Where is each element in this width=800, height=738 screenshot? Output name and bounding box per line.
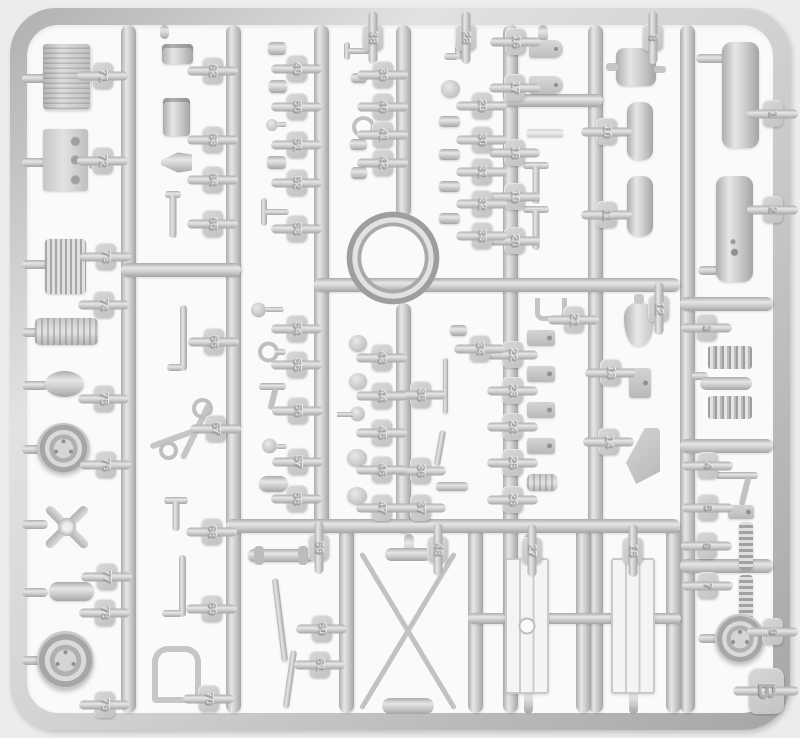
part-51 xyxy=(266,118,287,131)
part-tag-7: 7 xyxy=(697,572,718,599)
part-number: 60 xyxy=(316,622,328,635)
runner-vertical xyxy=(339,527,354,713)
part-number: 16 xyxy=(510,35,522,48)
part-tag-63: 63 xyxy=(202,126,223,153)
part-43 xyxy=(349,335,367,352)
part-69 xyxy=(162,555,186,617)
part-tag-48: 48 xyxy=(427,536,448,563)
part-number: 12 xyxy=(653,302,665,315)
part-number: 69 xyxy=(206,602,218,615)
part-tag-5: 5 xyxy=(697,494,718,521)
part-tag-40: 40 xyxy=(372,93,393,120)
sprue-letter: B xyxy=(752,682,780,700)
part-number: 18 xyxy=(509,146,521,159)
part-42 xyxy=(351,167,367,179)
part-number: 15 xyxy=(627,544,639,557)
part-77 xyxy=(39,498,95,556)
part-number: 54 xyxy=(291,322,303,335)
part-tag-34: 34 xyxy=(469,335,490,362)
part-25 xyxy=(527,438,555,454)
part-number: 70 xyxy=(203,692,215,705)
part-detail xyxy=(385,548,431,561)
part-detail xyxy=(708,346,752,369)
part-number: 1 xyxy=(767,110,779,117)
part-75 xyxy=(45,371,84,397)
part-tag-79: 79 xyxy=(94,691,115,718)
part-number: 10 xyxy=(601,125,613,138)
part-tag-27: 27 xyxy=(521,537,542,564)
part-number: 71 xyxy=(97,69,109,82)
part-number: 20 xyxy=(509,234,521,247)
part-tag-67: 67 xyxy=(205,415,226,442)
part-number: 24 xyxy=(507,420,519,433)
part-tag-68: 68 xyxy=(201,518,222,545)
part-23 xyxy=(527,366,555,382)
part-number: 35 xyxy=(415,388,427,401)
part-26 xyxy=(527,474,557,491)
part-tag-65: 65 xyxy=(202,210,223,237)
part-tag-36: 36 xyxy=(410,457,431,484)
part-tag-35: 35 xyxy=(410,381,431,408)
part-tag-3: 3 xyxy=(696,314,717,341)
part-30 xyxy=(439,116,460,127)
runner-vertical xyxy=(396,303,411,534)
part-number: 28 xyxy=(460,31,472,44)
part-tag-4: 4 xyxy=(697,452,718,479)
part-1 xyxy=(722,42,759,148)
part-number: 51 xyxy=(291,138,303,151)
part-55 xyxy=(258,343,286,361)
part-49 xyxy=(268,42,286,55)
part-41 xyxy=(350,139,367,150)
part-number: 46 xyxy=(376,463,388,476)
part-detail xyxy=(159,441,178,460)
part-tag-8: 8 xyxy=(642,24,663,51)
part-7 xyxy=(739,575,753,619)
part-9 xyxy=(715,614,765,664)
part-tag-17: 17 xyxy=(504,74,525,101)
part-tag-62: 62 xyxy=(202,57,223,84)
part-tag-78: 78 xyxy=(94,599,115,626)
part-number: 17 xyxy=(509,81,521,94)
part-45 xyxy=(337,406,369,422)
sprue-gate-stub xyxy=(160,25,169,39)
part-number: 7 xyxy=(702,582,714,589)
part-number: 3 xyxy=(701,324,713,331)
part-tag-59: 59 xyxy=(308,534,329,561)
part-tag-13: 13 xyxy=(600,359,621,386)
part-tag-11: 11 xyxy=(596,201,617,228)
part-number: 33 xyxy=(476,229,488,242)
part-62 xyxy=(162,44,193,64)
part-58 xyxy=(259,476,288,492)
part-number: 57 xyxy=(292,455,304,468)
part-number: 48 xyxy=(432,543,444,556)
part-79 xyxy=(37,631,94,690)
part-tag-54: 54 xyxy=(286,315,307,342)
part-detail xyxy=(700,377,752,390)
part-tag-29: 29 xyxy=(471,92,492,119)
part-65 xyxy=(165,191,181,238)
part-tag-21: 21 xyxy=(563,306,584,333)
part-tag-9: 9 xyxy=(762,618,783,645)
part-detail xyxy=(382,698,434,714)
part-number: 78 xyxy=(99,606,111,619)
runner-horizontal xyxy=(680,297,773,311)
part-54 xyxy=(251,302,284,317)
part-33 xyxy=(439,213,460,224)
part-number: 38 xyxy=(367,31,379,44)
part-27 xyxy=(505,558,549,694)
part-53 xyxy=(261,198,289,226)
part-number: 58 xyxy=(291,492,303,505)
part-78 xyxy=(49,582,94,601)
part-number: 67 xyxy=(210,422,222,435)
part-31 xyxy=(439,149,460,160)
part-number: 52 xyxy=(291,176,303,189)
runner-horizontal xyxy=(680,559,773,573)
part-15 xyxy=(611,558,655,694)
part-number: 43 xyxy=(376,351,388,364)
part-tag-72: 72 xyxy=(92,147,113,174)
part-tag-28: 28 xyxy=(455,24,476,51)
part-number: 41 xyxy=(377,128,389,141)
part-11 xyxy=(627,176,653,236)
part-tag-49: 49 xyxy=(286,55,307,82)
part-number: 64 xyxy=(207,173,219,186)
part-number: 11 xyxy=(600,208,612,221)
part-57 xyxy=(262,439,287,453)
part-tag-52: 52 xyxy=(286,169,307,196)
part-tag-32: 32 xyxy=(471,190,492,217)
part-tag-43: 43 xyxy=(371,344,392,371)
part-tag-75: 75 xyxy=(93,385,114,412)
sprue-letter-tag: B xyxy=(748,668,784,714)
part-number: 66 xyxy=(208,335,220,348)
part-tag-37: 37 xyxy=(410,494,431,521)
part-number: 62 xyxy=(207,64,219,77)
sprue-gate-stub xyxy=(22,588,48,597)
part-number: 21 xyxy=(568,313,580,326)
part-number: 34 xyxy=(474,342,486,355)
part-63 xyxy=(163,98,190,136)
part-tag-74: 74 xyxy=(93,291,114,318)
runner-horizontal xyxy=(226,519,680,533)
part-66 xyxy=(167,305,187,371)
part-tag-57: 57 xyxy=(287,448,308,475)
runner-horizontal xyxy=(121,263,241,277)
part-tag-56: 56 xyxy=(287,397,308,424)
part-number: 19 xyxy=(509,190,521,203)
part-tag-14: 14 xyxy=(598,428,619,455)
part-number: 36 xyxy=(415,464,427,477)
part-detail xyxy=(58,518,76,536)
part-tag-51: 51 xyxy=(286,131,307,158)
part-number: 30 xyxy=(476,133,488,146)
part-37 xyxy=(436,482,468,491)
part-number: 49 xyxy=(291,62,303,75)
part-tag-73: 73 xyxy=(95,243,116,270)
part-number: 72 xyxy=(97,154,109,167)
part-tag-25: 25 xyxy=(502,449,523,476)
part-number: 39 xyxy=(377,68,389,81)
part-number: 32 xyxy=(476,197,488,210)
part-number: 75 xyxy=(98,392,110,405)
part-tag-45: 45 xyxy=(371,419,392,446)
part-number: 9 xyxy=(767,628,779,635)
part-tag-16: 16 xyxy=(505,28,526,55)
part-number: 37 xyxy=(415,501,427,514)
part-number: 59 xyxy=(313,541,325,554)
part-number: 6 xyxy=(701,542,713,549)
part-number: 44 xyxy=(376,389,388,402)
part-29 xyxy=(441,80,460,98)
part-number: 31 xyxy=(476,165,488,178)
sprue-photo: 1234567891011121314151617181920212223242… xyxy=(0,0,800,738)
part-tag-70: 70 xyxy=(198,685,219,712)
part-tag-20: 20 xyxy=(504,227,525,254)
part-2 xyxy=(716,176,753,282)
part-59 xyxy=(248,549,314,562)
part-number: 61 xyxy=(314,658,326,671)
part-tag-47: 47 xyxy=(371,494,392,521)
part-tag-23: 23 xyxy=(502,377,523,404)
center-ring xyxy=(346,211,440,305)
part-number: 76 xyxy=(100,458,112,471)
part-48 xyxy=(356,550,460,712)
part-detail xyxy=(708,396,752,419)
part-number: 53 xyxy=(291,222,303,235)
part-number: 5 xyxy=(702,504,714,511)
part-52 xyxy=(267,156,286,169)
part-73 xyxy=(45,239,86,294)
part-tag-58: 58 xyxy=(286,485,307,512)
part-number: 45 xyxy=(376,426,388,439)
part-number: 25 xyxy=(507,456,519,469)
part-number: 74 xyxy=(98,298,110,311)
part-tag-1: 1 xyxy=(762,100,783,127)
part-tag-77: 77 xyxy=(96,563,117,590)
part-number: 73 xyxy=(100,250,112,263)
part-tag-42: 42 xyxy=(372,149,393,176)
part-tag-31: 31 xyxy=(471,158,492,185)
part-number: 50 xyxy=(291,100,303,113)
part-tag-22: 22 xyxy=(502,341,523,368)
part-tag-46: 46 xyxy=(371,456,392,483)
part-number: 4 xyxy=(702,462,714,469)
runner-vertical xyxy=(680,25,695,713)
part-number: 47 xyxy=(376,501,388,514)
part-tag-12: 12 xyxy=(648,295,669,322)
part-35 xyxy=(443,358,448,414)
part-tag-66: 66 xyxy=(203,328,224,355)
part-number: 22 xyxy=(507,348,519,361)
part-tag-60: 60 xyxy=(311,615,332,642)
part-tag-64: 64 xyxy=(202,166,223,193)
part-tag-2: 2 xyxy=(762,196,783,223)
part-tag-26: 26 xyxy=(502,486,523,513)
part-34 xyxy=(450,325,467,336)
part-3 xyxy=(700,346,760,422)
part-number: 77 xyxy=(101,570,113,583)
part-number: 79 xyxy=(99,698,111,711)
part-number: 14 xyxy=(603,435,615,448)
part-tag-76: 76 xyxy=(95,451,116,478)
part-tag-30: 30 xyxy=(471,126,492,153)
part-number: 40 xyxy=(377,100,389,113)
part-number: 63 xyxy=(207,133,219,146)
part-50 xyxy=(269,80,287,93)
part-number: 27 xyxy=(526,544,538,557)
part-tag-39: 39 xyxy=(372,61,393,88)
part-number: 2 xyxy=(767,206,779,213)
runner-horizontal xyxy=(680,439,773,453)
part-32 xyxy=(439,181,460,192)
part-tag-10: 10 xyxy=(596,118,617,145)
part-number: 23 xyxy=(507,384,519,397)
part-number: 65 xyxy=(207,217,219,230)
part-number: 68 xyxy=(206,525,218,538)
part-tag-6: 6 xyxy=(696,532,717,559)
part-74 xyxy=(35,318,98,345)
part-6 xyxy=(739,522,753,570)
part-18 xyxy=(527,129,563,137)
part-number: 55 xyxy=(291,358,303,371)
part-tag-41: 41 xyxy=(372,121,393,148)
part-tag-15: 15 xyxy=(622,537,643,564)
part-44 xyxy=(349,373,367,390)
part-tag-61: 61 xyxy=(309,651,330,678)
part-tag-33: 33 xyxy=(471,222,492,249)
part-tag-53: 53 xyxy=(286,215,307,242)
part-24 xyxy=(527,402,555,418)
part-tag-69: 69 xyxy=(201,595,222,622)
part-number: 8 xyxy=(647,34,659,41)
part-tag-19: 19 xyxy=(504,183,525,210)
part-22 xyxy=(527,330,555,346)
part-tag-38: 38 xyxy=(362,24,383,51)
runner-vertical xyxy=(396,25,411,217)
part-number: 56 xyxy=(292,404,304,417)
part-tag-24: 24 xyxy=(502,413,523,440)
part-number: 13 xyxy=(605,366,617,379)
part-number: 29 xyxy=(476,99,488,112)
part-tag-55: 55 xyxy=(286,351,307,378)
part-number: 26 xyxy=(507,493,519,506)
part-tag-44: 44 xyxy=(371,382,392,409)
part-tag-18: 18 xyxy=(504,139,525,166)
part-68 xyxy=(164,497,188,531)
part-tag-50: 50 xyxy=(286,93,307,120)
part-number: 42 xyxy=(377,156,389,169)
part-tag-71: 71 xyxy=(92,62,113,89)
